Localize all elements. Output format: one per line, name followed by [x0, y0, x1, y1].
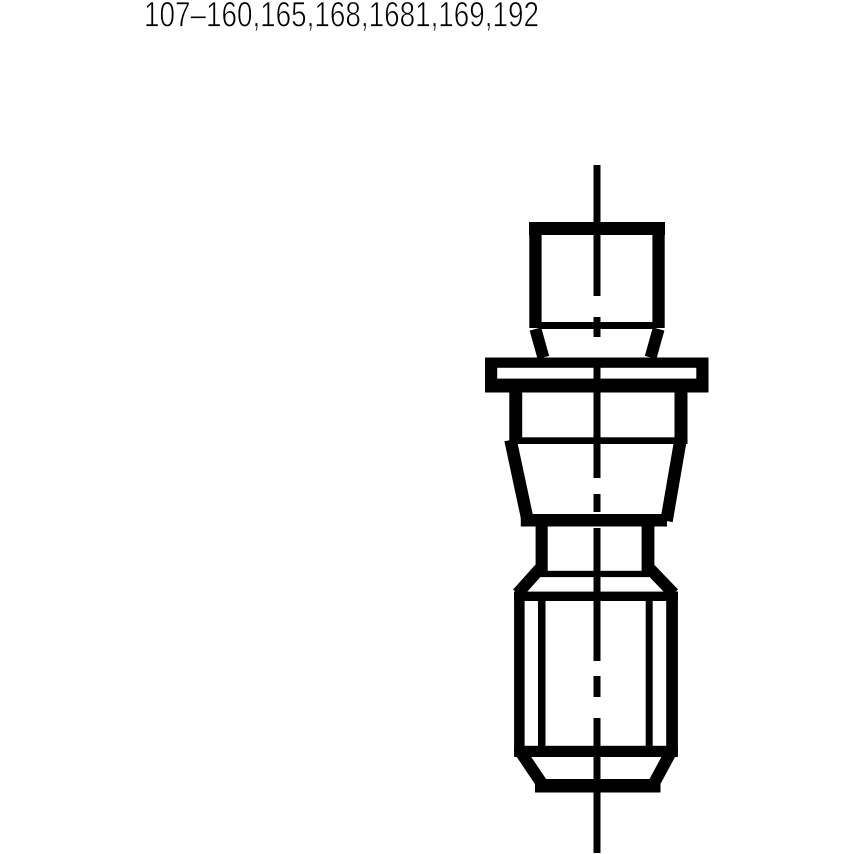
svg-text:107–160,165,168,1681,169,192: 107–160,165,168,1681,169,192	[144, 0, 539, 34]
